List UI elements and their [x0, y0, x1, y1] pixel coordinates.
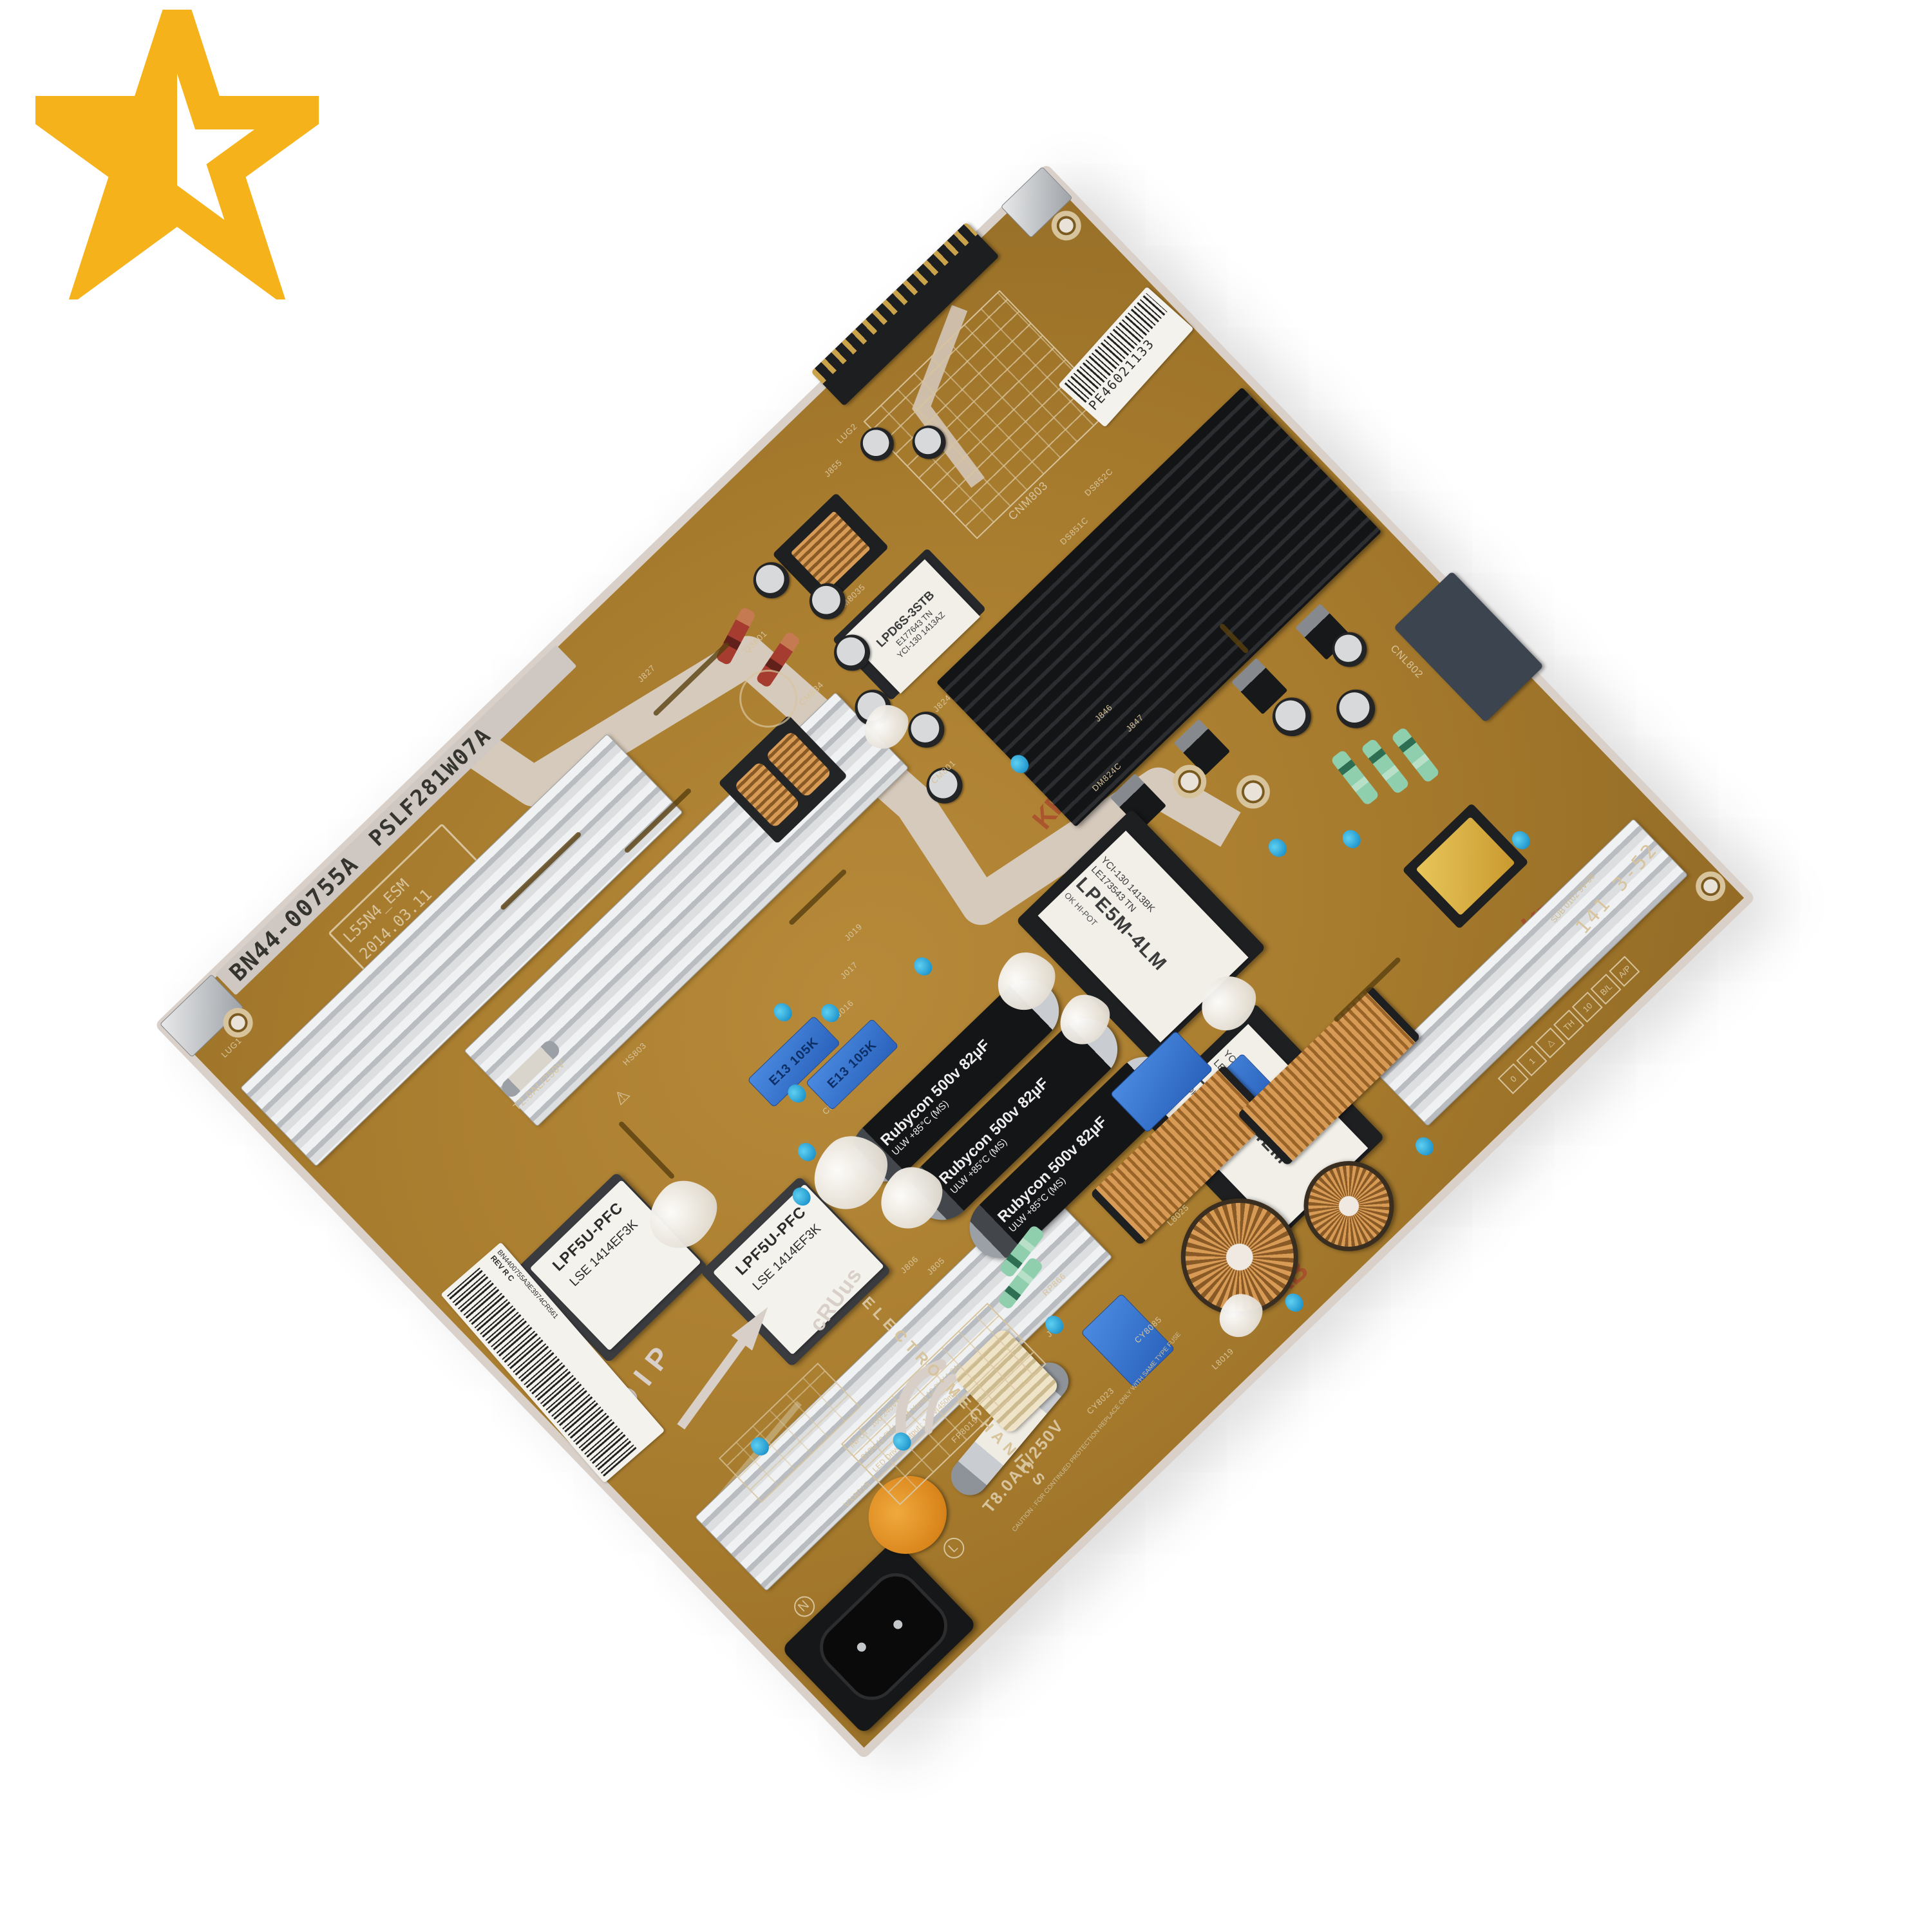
main-transformer-line2: LE173543 TN	[1089, 864, 1214, 993]
power-supply-board: BN44-00755A PSLF281W07A L55N4_ESM 2014.0…	[154, 164, 1756, 1760]
product-photo-page: { "logo": {"name": "half-star", "color":…	[0, 0, 1932, 1932]
half-star-logo-icon	[35, 10, 319, 299]
